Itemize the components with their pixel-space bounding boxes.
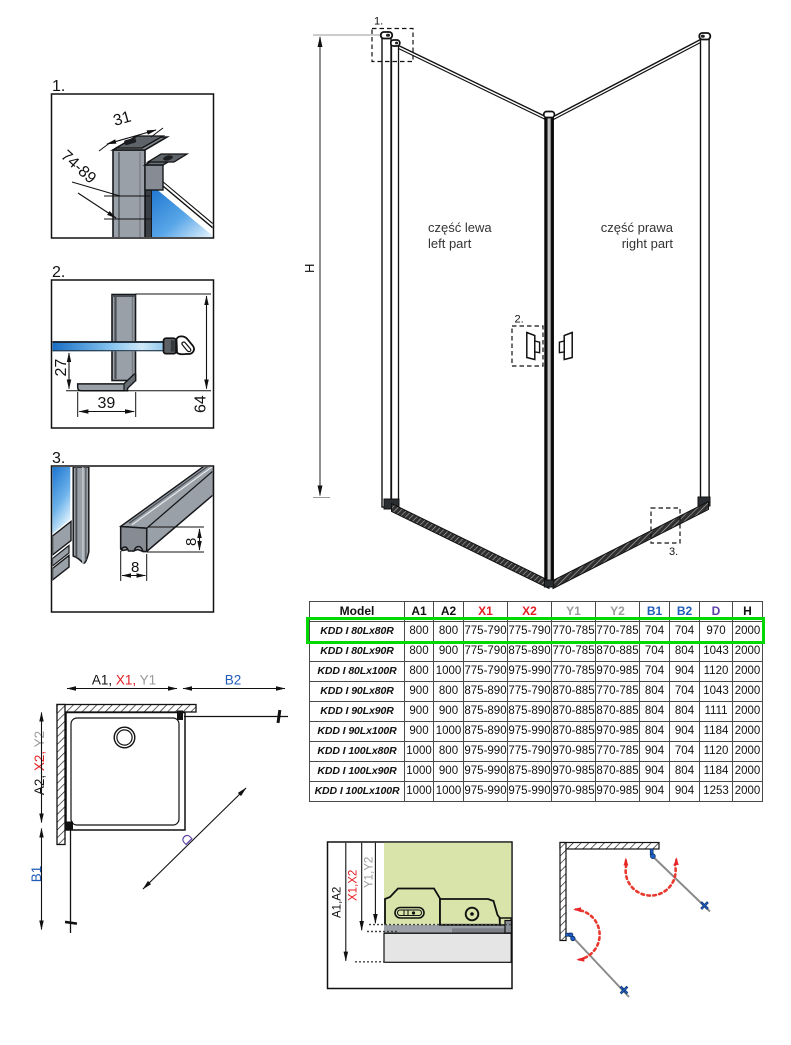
svg-text:right part: right part — [622, 236, 674, 251]
svg-text:1.: 1. — [52, 78, 65, 95]
svg-text:8: 8 — [131, 559, 139, 576]
svg-text:39: 39 — [98, 395, 116, 412]
svg-text:3.: 3. — [669, 546, 678, 558]
svg-text:A1, X1, Y1: A1, X1, Y1 — [92, 673, 156, 688]
svg-text:64: 64 — [193, 395, 210, 413]
svg-text:27: 27 — [53, 359, 70, 377]
svg-text:left part: left part — [428, 236, 472, 251]
svg-text:2.: 2. — [515, 314, 524, 326]
svg-text:3.: 3. — [52, 450, 65, 467]
svg-text:A1,A2: A1,A2 — [332, 887, 344, 918]
svg-text:2.: 2. — [52, 264, 65, 281]
svg-text:część lewa: część lewa — [428, 220, 492, 235]
svg-text:Y1,Y2: Y1,Y2 — [364, 857, 376, 888]
svg-text:D: D — [178, 830, 196, 848]
svg-text:część prawa: część prawa — [601, 220, 674, 235]
svg-text:1.: 1. — [374, 16, 383, 28]
svg-text:H: H — [302, 264, 317, 273]
svg-text:B2: B2 — [225, 673, 242, 688]
svg-text:X1,X2: X1,X2 — [348, 870, 360, 901]
svg-text:A2, X2, Y2: A2, X2, Y2 — [32, 731, 47, 795]
svg-text:8: 8 — [183, 538, 200, 546]
